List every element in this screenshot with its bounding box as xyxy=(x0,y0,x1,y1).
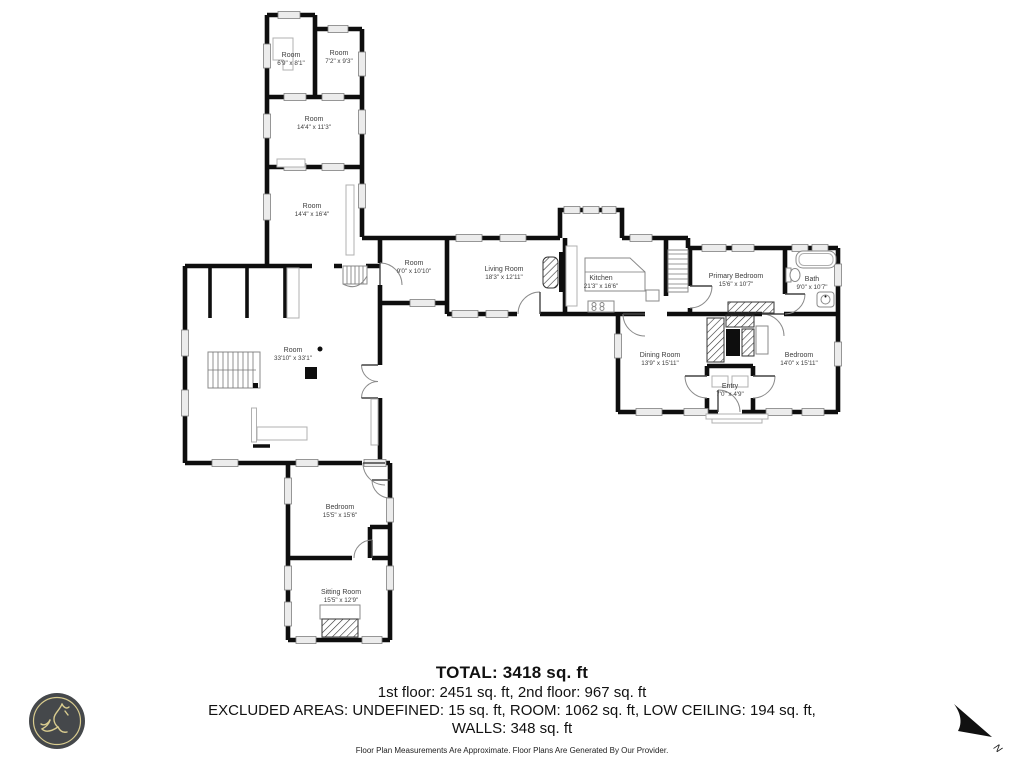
room-label: Living Room xyxy=(485,266,524,273)
wing-closet-strip xyxy=(346,185,354,255)
floor-plan-page: Room 6'9" x 8'1" Room 7'2" x 9'3" Room 1… xyxy=(0,0,1024,768)
room-label: Room xyxy=(284,347,303,354)
excluded-areas-line2: WALLS: 348 sq. ft xyxy=(0,720,1024,737)
floor-areas: 1st floor: 2451 sq. ft, 2nd floor: 967 s… xyxy=(0,684,1024,701)
toilet xyxy=(786,268,800,282)
living-room-fireplace xyxy=(543,252,569,292)
room-dims: 33'10" x 33'1" xyxy=(274,355,312,362)
kitchen-counter xyxy=(566,246,577,306)
room-dims: 14'0" x 15'11" xyxy=(780,360,818,367)
room-dims: 14'4" x 11'3" xyxy=(297,124,331,131)
room-label: Bedroom xyxy=(326,504,355,511)
room-dims: 7'2" x 9'3" xyxy=(325,58,353,65)
room-label: Kitchen xyxy=(589,275,612,282)
room-dims: 9'0" x 10'7" xyxy=(796,284,827,291)
room-label: Entry xyxy=(722,383,739,390)
room-label: Room xyxy=(330,50,349,57)
room-dims: 15'5" x 15'6" xyxy=(323,512,358,519)
room-dims: 21'3" x 16'6" xyxy=(584,283,619,290)
central-chimney xyxy=(707,302,774,362)
wing-shelf xyxy=(277,159,305,167)
room-label: Primary Bedroom xyxy=(709,273,764,280)
room-dims: 7'0" x 4'9" xyxy=(716,391,744,398)
total-area: TOTAL: 3418 sq. ft xyxy=(0,663,1024,683)
big-room-column xyxy=(287,268,299,318)
staircase-main xyxy=(208,352,260,388)
room-label: Room xyxy=(303,203,322,210)
support-post xyxy=(305,367,317,379)
room-dims: 15'5" x 12'9" xyxy=(324,597,359,604)
floor-plan-drawing: Room 6'9" x 8'1" Room 7'2" x 9'3" Room 1… xyxy=(0,0,1024,768)
staircase-kitchen xyxy=(668,250,688,292)
staircase-landing xyxy=(343,266,367,287)
support-post-small xyxy=(318,347,323,352)
room-dims: 18'3" x 12'11" xyxy=(485,274,523,281)
room-label: Room xyxy=(305,116,324,123)
disclaimer: Floor Plan Measurements Are Approximate.… xyxy=(0,746,1024,755)
room-dims: 13'9" x 15'11" xyxy=(641,360,679,367)
kitchen-appliance xyxy=(646,290,659,301)
room-label: Room xyxy=(405,260,424,267)
room-label: Sitting Room xyxy=(321,589,361,596)
bath-sink xyxy=(817,292,834,307)
room-dims: 9'0" x 10'10" xyxy=(397,268,432,275)
area-summary: TOTAL: 3418 sq. ft 1st floor: 2451 sq. f… xyxy=(0,663,1024,755)
door-leaf-panel xyxy=(371,399,378,445)
room-dims: 14'4" x 16'4" xyxy=(295,211,330,218)
excluded-areas-line1: EXCLUDED AREAS: UNDEFINED: 15 sq. ft, RO… xyxy=(0,702,1024,719)
room-label: Dining Room xyxy=(640,352,681,359)
kitchen-stove xyxy=(588,301,614,312)
sitting-room-fireplace xyxy=(320,605,360,637)
room-dims: 6'9" x 8'1" xyxy=(277,60,305,67)
bathtub xyxy=(796,251,836,268)
room-dims: 15'6" x 10'7" xyxy=(719,281,754,288)
room-label: Bedroom xyxy=(785,352,814,359)
room-label: Room xyxy=(282,52,301,59)
room-label: Bath xyxy=(805,276,820,283)
big-room-shelving xyxy=(252,408,308,442)
entry-porch-steps xyxy=(706,414,768,423)
